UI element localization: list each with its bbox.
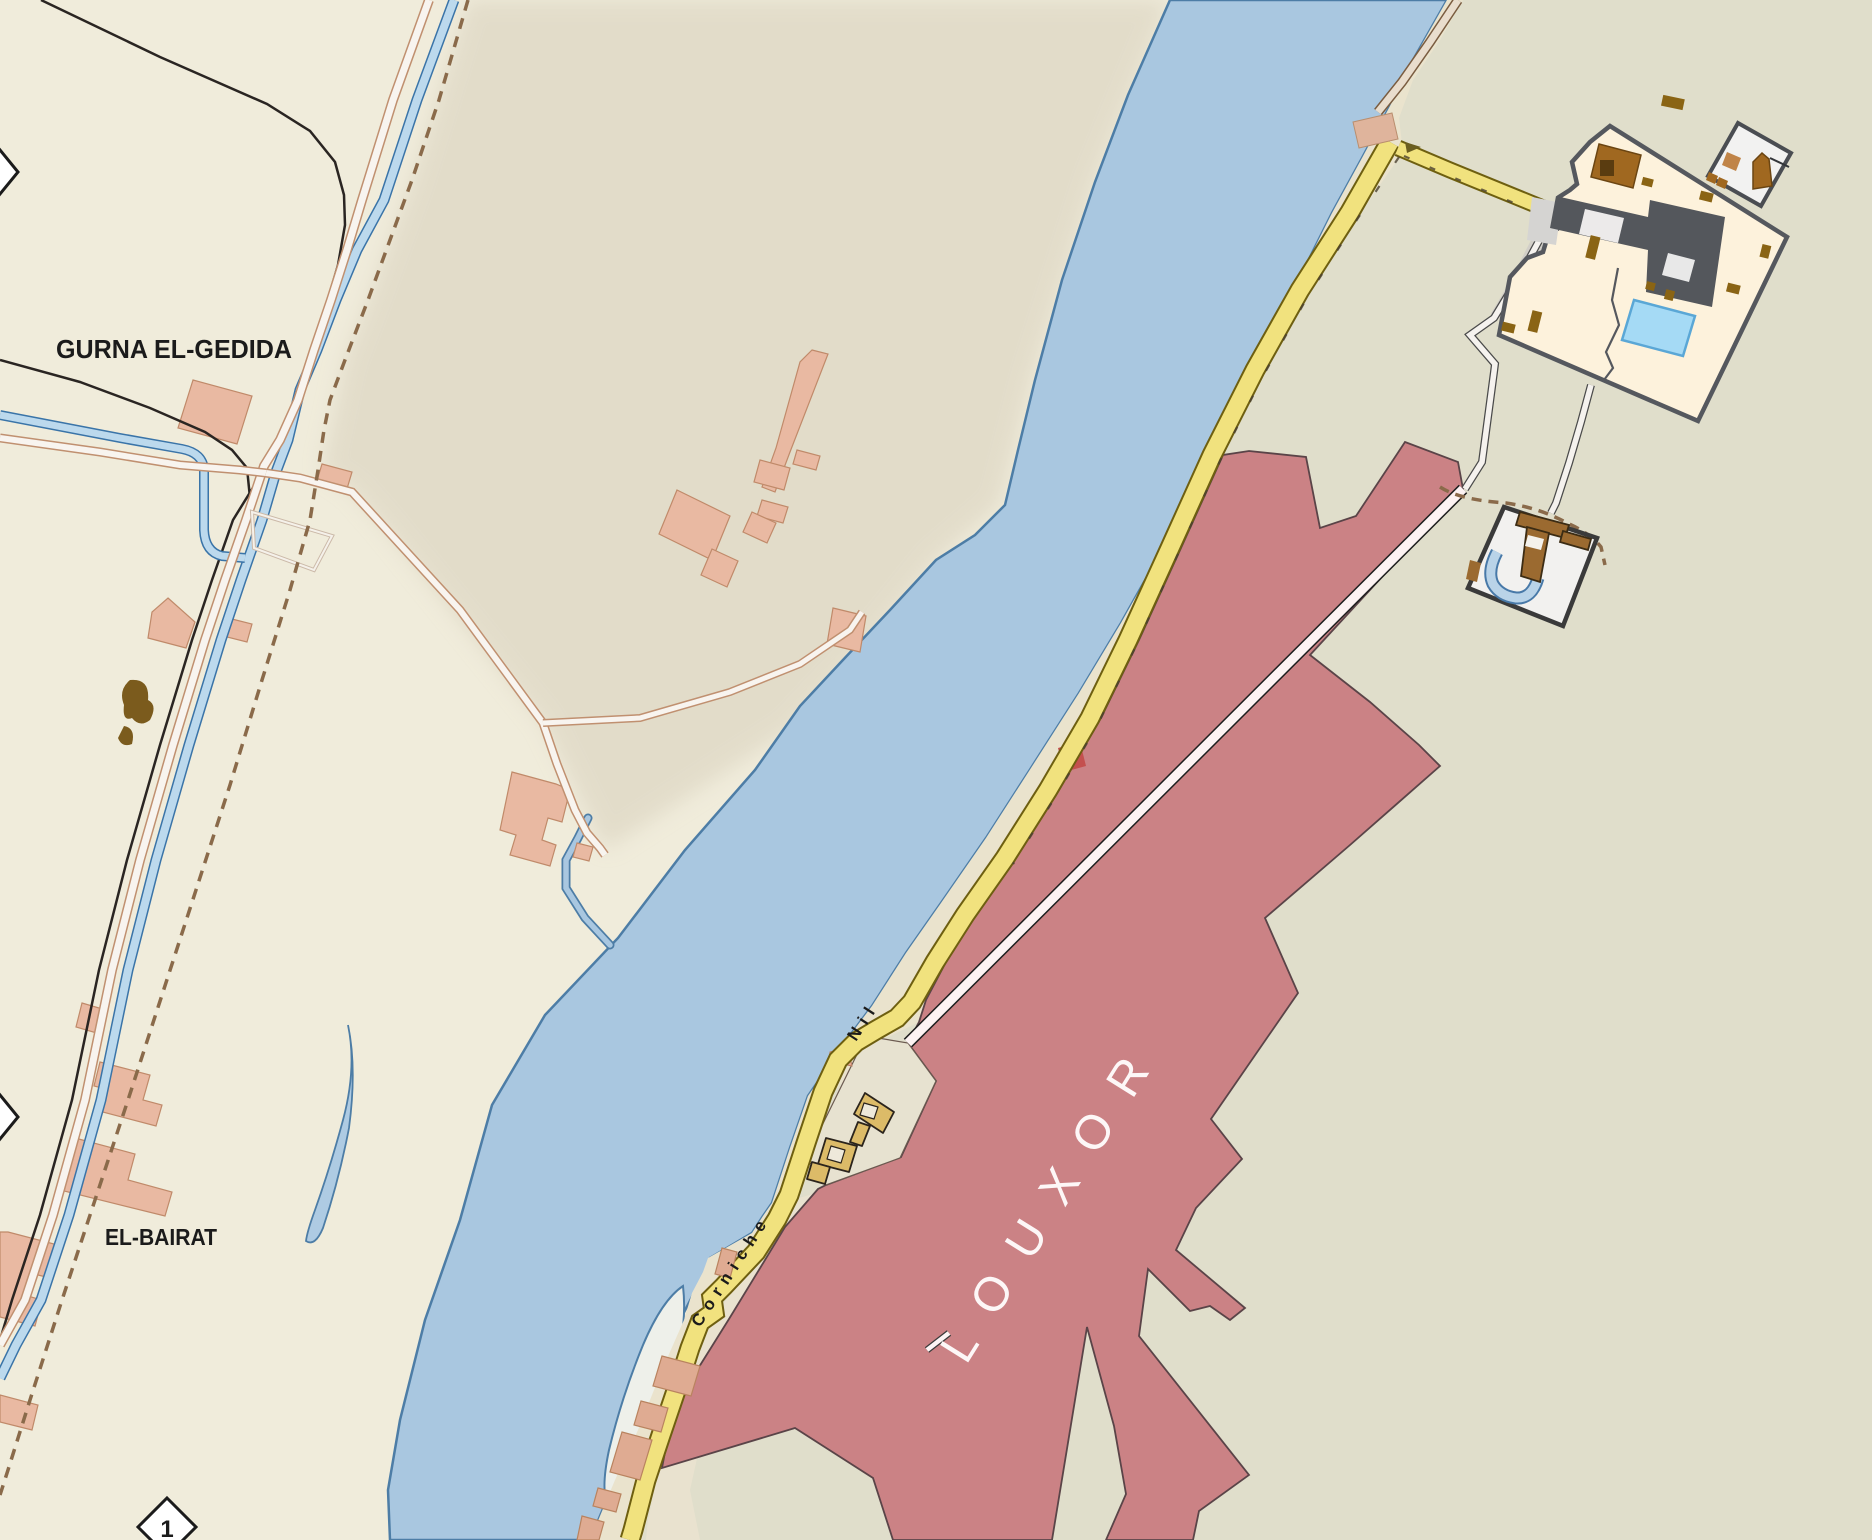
- svg-text:EL-BAIRAT: EL-BAIRAT: [105, 1224, 217, 1250]
- svg-text:1: 1: [160, 1516, 173, 1540]
- svg-text:GURNA EL-GEDIDA: GURNA EL-GEDIDA: [56, 334, 292, 364]
